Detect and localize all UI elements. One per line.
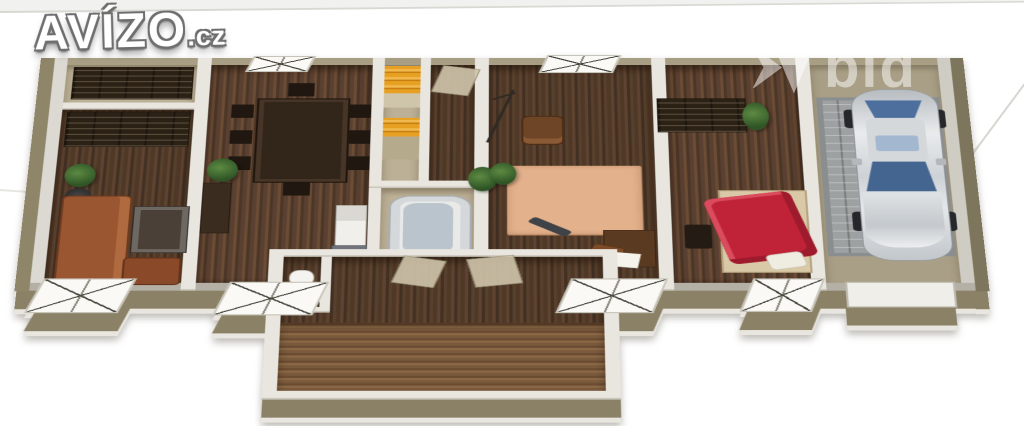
watermark-logo-icon bbox=[752, 40, 810, 96]
closet-yellow-shelves-1 bbox=[384, 66, 421, 93]
window-study-bottom bbox=[555, 278, 668, 313]
dining-chair bbox=[349, 105, 372, 118]
hall-wall-bottom bbox=[261, 391, 621, 400]
floorplan-screenshot: bid AVÍZO.cz bbox=[0, 0, 1024, 426]
hall-open-door-2 bbox=[466, 255, 523, 288]
hall-wall-top bbox=[269, 249, 617, 257]
dining-cabinet bbox=[199, 183, 231, 234]
entrance-hall bbox=[261, 249, 621, 399]
storage-shelving-unit bbox=[71, 67, 195, 99]
closet-yellow-shelves-2 bbox=[383, 118, 420, 137]
car bbox=[845, 87, 956, 262]
plant-study bbox=[490, 163, 517, 185]
dining-table bbox=[253, 98, 351, 182]
bathtub-basin bbox=[402, 203, 453, 253]
avizo-logo: AVÍZO.cz bbox=[33, 1, 227, 61]
watermark-text: bid bbox=[824, 34, 917, 101]
dining-chair bbox=[348, 130, 371, 144]
living-table bbox=[130, 206, 190, 253]
dining-chair bbox=[283, 182, 311, 196]
car-mirror bbox=[851, 158, 862, 165]
car-hood bbox=[863, 192, 947, 247]
wardrobe bbox=[657, 98, 748, 132]
dining-chair bbox=[231, 105, 254, 118]
dining-chair bbox=[229, 130, 252, 144]
car-mirror bbox=[935, 158, 946, 165]
dining-chair bbox=[288, 83, 315, 96]
window-study-top bbox=[539, 55, 622, 73]
area-rug bbox=[507, 166, 643, 235]
window-dining-bottom bbox=[212, 282, 329, 316]
window-dining-top bbox=[245, 56, 316, 72]
garage-door bbox=[845, 282, 957, 308]
dining-chair bbox=[347, 156, 370, 170]
car-sunroof bbox=[875, 135, 919, 151]
avizo-logo-suffix: .cz bbox=[187, 20, 227, 51]
living-shelving-unit bbox=[64, 112, 191, 147]
bedroom-stool bbox=[684, 225, 712, 249]
wall-storage-living bbox=[62, 102, 207, 109]
watermark: bid bbox=[752, 34, 917, 101]
closet-shelf-front-1 bbox=[384, 93, 421, 107]
closet-shelf-front-2 bbox=[382, 136, 419, 159]
window-living-bottom bbox=[24, 278, 137, 313]
hall-floor-step bbox=[277, 323, 606, 391]
window-bedroom-bottom bbox=[740, 278, 826, 312]
house-slab bbox=[16, 58, 989, 411]
armchair bbox=[521, 116, 564, 145]
avizo-logo-text: AVÍZO bbox=[33, 4, 187, 61]
car-windshield bbox=[864, 162, 937, 192]
washing-machine bbox=[335, 205, 368, 246]
